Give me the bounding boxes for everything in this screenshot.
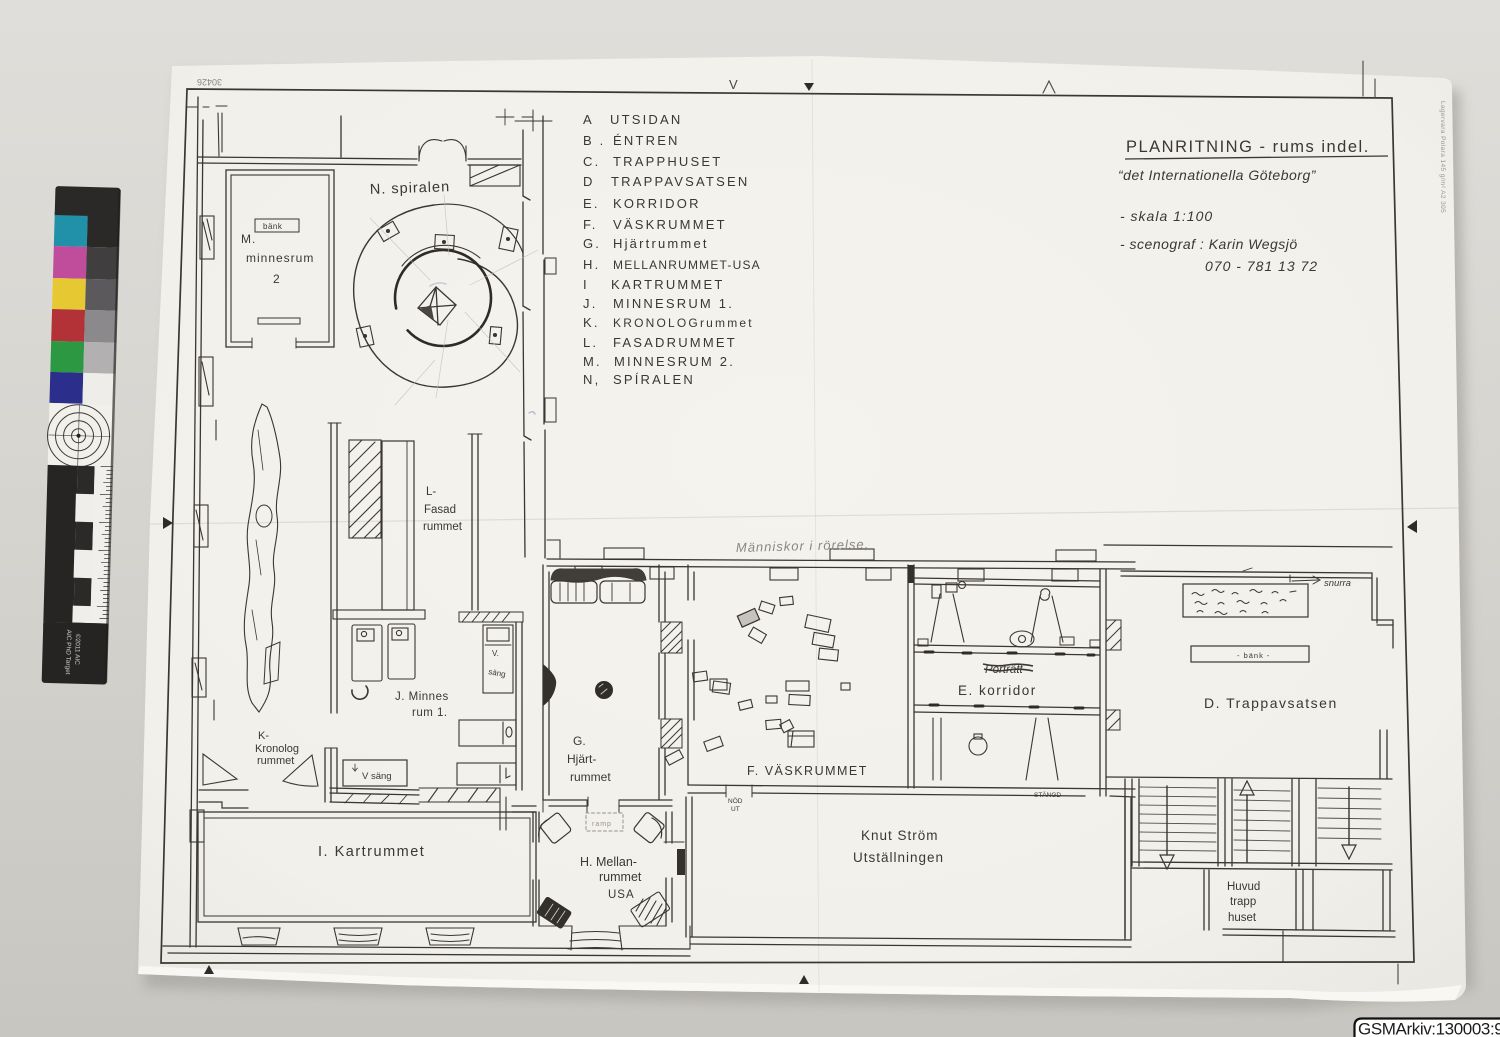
svg-text:SPÍRALEN: SPÍRALEN [613,372,695,387]
svg-text:H.: H. [583,257,600,272]
svg-text:G.: G. [573,734,586,748]
svg-text:VÄSKRUMMET: VÄSKRUMMET [613,217,727,232]
svg-text:A: A [583,112,594,127]
svg-text:Knut Ström: Knut Ström [861,828,939,843]
svg-text:rummet: rummet [423,521,463,533]
svg-text:L-: L- [426,486,436,498]
svg-text:I. Kartrummet: I. Kartrummet [318,844,425,860]
svg-text:FASADRUMMET: FASADRUMMET [613,335,737,350]
svg-text:STÄNGD: STÄNGD [1034,791,1061,799]
svg-text:V: V [729,77,738,92]
svg-text:UTSIDAN: UTSIDAN [610,112,682,127]
svg-text:Lagervara Polara 145 g/m²: Lagervara Polara 145 g/m² A2 305 [1439,101,1446,213]
svg-text:- scenograf : Karin Wegsjö: - scenograf : Karin Wegsjö [1120,236,1298,252]
svg-text:TRAPPHUSET: TRAPPHUSET [613,154,722,169]
svg-text:M.: M. [583,354,602,369]
svg-text:KRONOLOGrummet: KRONOLOGrummet [613,316,754,330]
svg-text:USA: USA [608,889,635,901]
svg-text:Fasad: Fasad [424,504,456,516]
svg-text:D: D [583,174,595,189]
svg-text:AIC PhD Target: AIC PhD Target [64,629,72,674]
svg-text:Hjärtrummet: Hjärtrummet [613,236,709,251]
svg-text:UT: UT [731,806,740,813]
svg-text:ÉNTREN: ÉNTREN [613,133,680,148]
svg-text:rummet: rummet [599,870,642,884]
svg-text:N,: N, [583,372,600,387]
svg-text:Kronolog: Kronolog [255,743,299,755]
svg-text:B .: B . [583,133,606,148]
svg-text:- skala 1:100: - skala 1:100 [1120,208,1213,224]
svg-text:F.: F. [583,217,598,232]
svg-text:070 - 781 13 72: 070 - 781 13 72 [1205,258,1318,274]
svg-text:trapp: trapp [1230,896,1256,908]
svg-text:K-: K- [258,730,269,742]
svg-text:rum 1.: rum 1. [412,707,448,719]
svg-text:V.: V. [492,649,499,658]
svg-text:N. spiralen: N. spiralen [370,179,451,198]
svg-text:TRAPPAVSATSEN: TRAPPAVSATSEN [611,174,749,189]
svg-text:D. Trappavsatsen: D. Trappavsatsen [1204,695,1338,711]
svg-text:- bänk -: - bänk - [1237,651,1270,660]
svg-text:MELLANRUMMET-USA: MELLANRUMMET-USA [613,258,761,272]
svg-text:Huvud: Huvud [1227,881,1260,893]
svg-text:C.: C. [583,154,600,169]
svg-text:L.: L. [583,335,598,350]
svg-text:KARTRUMMET: KARTRUMMET [611,277,724,292]
svg-text:NÖD: NÖD [728,797,743,805]
svg-text:bänk: bänk [263,222,283,231]
svg-text:“det Internationella Göteborg”: “det Internationella Göteborg” [1118,167,1317,183]
svg-text:PLANRITNING - rums indel.: PLANRITNING - rums indel. [1126,138,1370,156]
svg-text:snurra: snurra [1324,578,1351,589]
svg-text:K.: K. [583,315,600,330]
svg-text:rummet: rummet [257,755,294,767]
svg-text:Utställningen: Utställningen [853,850,944,865]
svg-text:GSMArkiv:130003:9: GSMArkiv:130003:9 [1358,1020,1500,1037]
svg-text:©2011 AIC: ©2011 AIC [73,634,82,666]
svg-text:30426: 30426 [197,77,222,87]
svg-text:rummet: rummet [570,770,611,784]
svg-text:Hjärt-: Hjärt- [567,752,596,766]
svg-text:J. Minnes: J. Minnes [395,691,449,703]
svg-text:KORRIDOR: KORRIDOR [613,196,701,211]
svg-text:V säng: V säng [362,771,392,782]
svg-text:H. Mellan-: H. Mellan- [580,855,637,869]
svg-text:M.: M. [241,232,256,246]
svg-text:MINNESRUM 1.: MINNESRUM 1. [613,296,734,311]
svg-text:E.: E. [583,196,600,211]
svg-text:G.: G. [583,236,601,251]
svg-text:J.: J. [583,296,598,311]
svg-text:huset: huset [1228,912,1257,924]
svg-text:F. VÄSKRUMMET: F. VÄSKRUMMET [747,764,868,778]
svg-text:I: I [583,277,589,292]
svg-text:2: 2 [273,272,280,286]
svg-text:ramp: ramp [592,821,612,828]
svg-text:E. korridor: E. korridor [958,683,1037,698]
svg-text:minnesrum: minnesrum [246,251,314,265]
svg-text:MINNESRUM 2.: MINNESRUM 2. [614,354,735,369]
